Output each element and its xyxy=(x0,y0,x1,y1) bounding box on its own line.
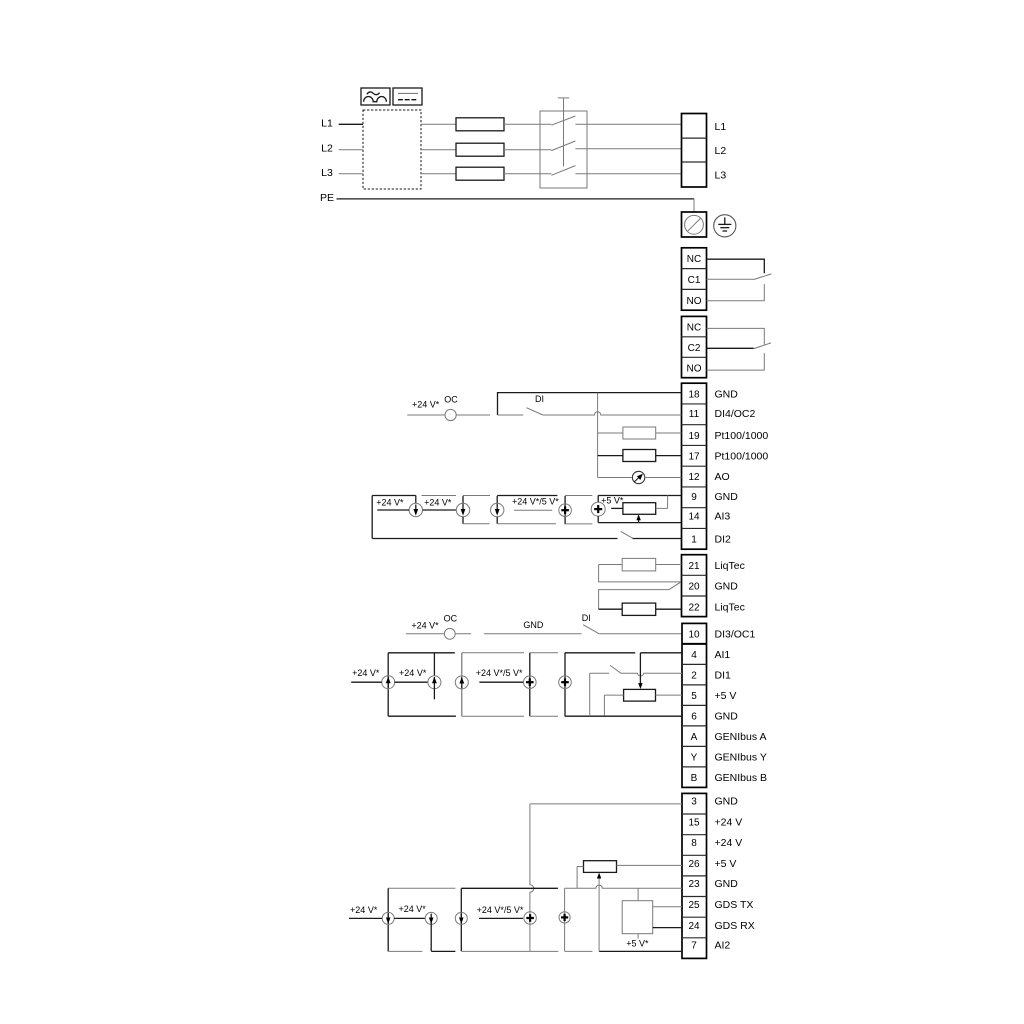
svg-text:+24 V*: +24 V* xyxy=(399,668,427,678)
svg-text:6: 6 xyxy=(691,711,697,722)
svg-text:17: 17 xyxy=(688,452,700,463)
svg-text:GND: GND xyxy=(715,796,739,808)
svg-text:AI2: AI2 xyxy=(715,940,731,952)
svg-text:PE: PE xyxy=(320,192,334,204)
svg-text:OC: OC xyxy=(444,395,458,405)
svg-text:+24 V*/5 V*: +24 V*/5 V* xyxy=(512,496,559,506)
svg-text:7: 7 xyxy=(691,941,697,952)
svg-text:AI1: AI1 xyxy=(715,649,731,661)
svg-text:3: 3 xyxy=(691,797,697,808)
svg-text:25: 25 xyxy=(688,900,700,911)
svg-text:8: 8 xyxy=(691,838,697,849)
svg-text:LiqTec: LiqTec xyxy=(715,601,745,613)
svg-text:GND: GND xyxy=(523,620,544,630)
svg-text:GND: GND xyxy=(715,491,739,503)
svg-text:NO: NO xyxy=(687,363,702,374)
svg-text:L2: L2 xyxy=(321,142,333,154)
svg-text:4: 4 xyxy=(691,650,697,661)
svg-text:+24 V*/5 V*: +24 V*/5 V* xyxy=(477,905,524,915)
svg-text:5: 5 xyxy=(691,691,697,702)
svg-text:GND: GND xyxy=(715,878,739,890)
svg-text:+24 V*/5 V*: +24 V*/5 V* xyxy=(476,668,523,678)
svg-text:23: 23 xyxy=(688,879,700,890)
svg-text:10: 10 xyxy=(688,630,700,641)
svg-text:NC: NC xyxy=(687,254,701,265)
svg-text:L2: L2 xyxy=(715,145,727,157)
svg-text:L3: L3 xyxy=(321,167,333,179)
svg-text:DI: DI xyxy=(535,394,544,404)
svg-text:21: 21 xyxy=(688,561,700,572)
svg-text:NC: NC xyxy=(687,323,701,334)
svg-text:DI1: DI1 xyxy=(715,669,732,681)
svg-text:Y: Y xyxy=(691,752,698,763)
svg-text:+24 V*: +24 V* xyxy=(398,904,426,914)
svg-text:AI3: AI3 xyxy=(715,511,731,523)
svg-text:19: 19 xyxy=(688,431,700,442)
svg-text:Pt100/1000: Pt100/1000 xyxy=(715,430,769,442)
svg-text:LiqTec: LiqTec xyxy=(715,560,745,572)
svg-text:AO: AO xyxy=(715,471,730,483)
svg-text:+5 V*: +5 V* xyxy=(626,938,649,948)
svg-text:GND: GND xyxy=(715,388,739,400)
svg-text:+24 V*: +24 V* xyxy=(376,497,404,507)
svg-text:GDS TX: GDS TX xyxy=(715,899,754,911)
svg-text:+5 V*: +5 V* xyxy=(601,495,624,505)
svg-text:L1: L1 xyxy=(715,121,727,133)
svg-text:DI2: DI2 xyxy=(715,534,732,546)
svg-text:L1: L1 xyxy=(321,117,333,129)
svg-text:OC: OC xyxy=(444,613,458,623)
svg-text:GDS RX: GDS RX xyxy=(715,920,755,932)
svg-text:C1: C1 xyxy=(688,275,701,286)
svg-text:Pt100/1000: Pt100/1000 xyxy=(715,451,769,463)
svg-text:GND: GND xyxy=(715,710,739,722)
svg-text:18: 18 xyxy=(688,389,700,400)
svg-text:14: 14 xyxy=(688,512,700,523)
svg-text:GENIbus Y: GENIbus Y xyxy=(715,751,767,763)
svg-text:C2: C2 xyxy=(688,343,701,354)
svg-text:DI3/OC1: DI3/OC1 xyxy=(715,629,756,641)
svg-text:2: 2 xyxy=(691,670,697,681)
svg-text:15: 15 xyxy=(688,818,700,829)
svg-text:DI: DI xyxy=(582,613,591,623)
svg-text:9: 9 xyxy=(691,492,697,503)
svg-text:GND: GND xyxy=(715,581,739,593)
svg-text:+5 V: +5 V xyxy=(715,858,737,870)
svg-text:A: A xyxy=(691,732,698,743)
svg-text:GENIbus B: GENIbus B xyxy=(715,772,768,784)
svg-text:22: 22 xyxy=(688,602,700,613)
svg-text:26: 26 xyxy=(688,859,700,870)
svg-text:DI4/OC2: DI4/OC2 xyxy=(715,408,756,420)
svg-text:+24 V: +24 V xyxy=(715,837,743,849)
svg-text:GENIbus A: GENIbus A xyxy=(715,731,767,743)
svg-text:+24 V: +24 V xyxy=(715,817,743,829)
svg-text:1: 1 xyxy=(691,535,697,546)
svg-text:11: 11 xyxy=(689,409,700,420)
svg-text:+24 V*: +24 V* xyxy=(350,905,378,915)
svg-text:NO: NO xyxy=(687,296,702,307)
svg-text:+5 V: +5 V xyxy=(715,690,737,702)
svg-text:24: 24 xyxy=(688,921,700,932)
svg-text:12: 12 xyxy=(688,472,700,483)
svg-text:+24 V*: +24 V* xyxy=(411,621,439,631)
svg-text:20: 20 xyxy=(688,582,700,593)
svg-text:+24 V*: +24 V* xyxy=(352,668,380,678)
svg-text:+24 V*: +24 V* xyxy=(412,400,440,410)
svg-text:B: B xyxy=(691,773,698,784)
svg-text:L3: L3 xyxy=(715,170,727,182)
svg-text:+24 V*: +24 V* xyxy=(424,497,452,507)
